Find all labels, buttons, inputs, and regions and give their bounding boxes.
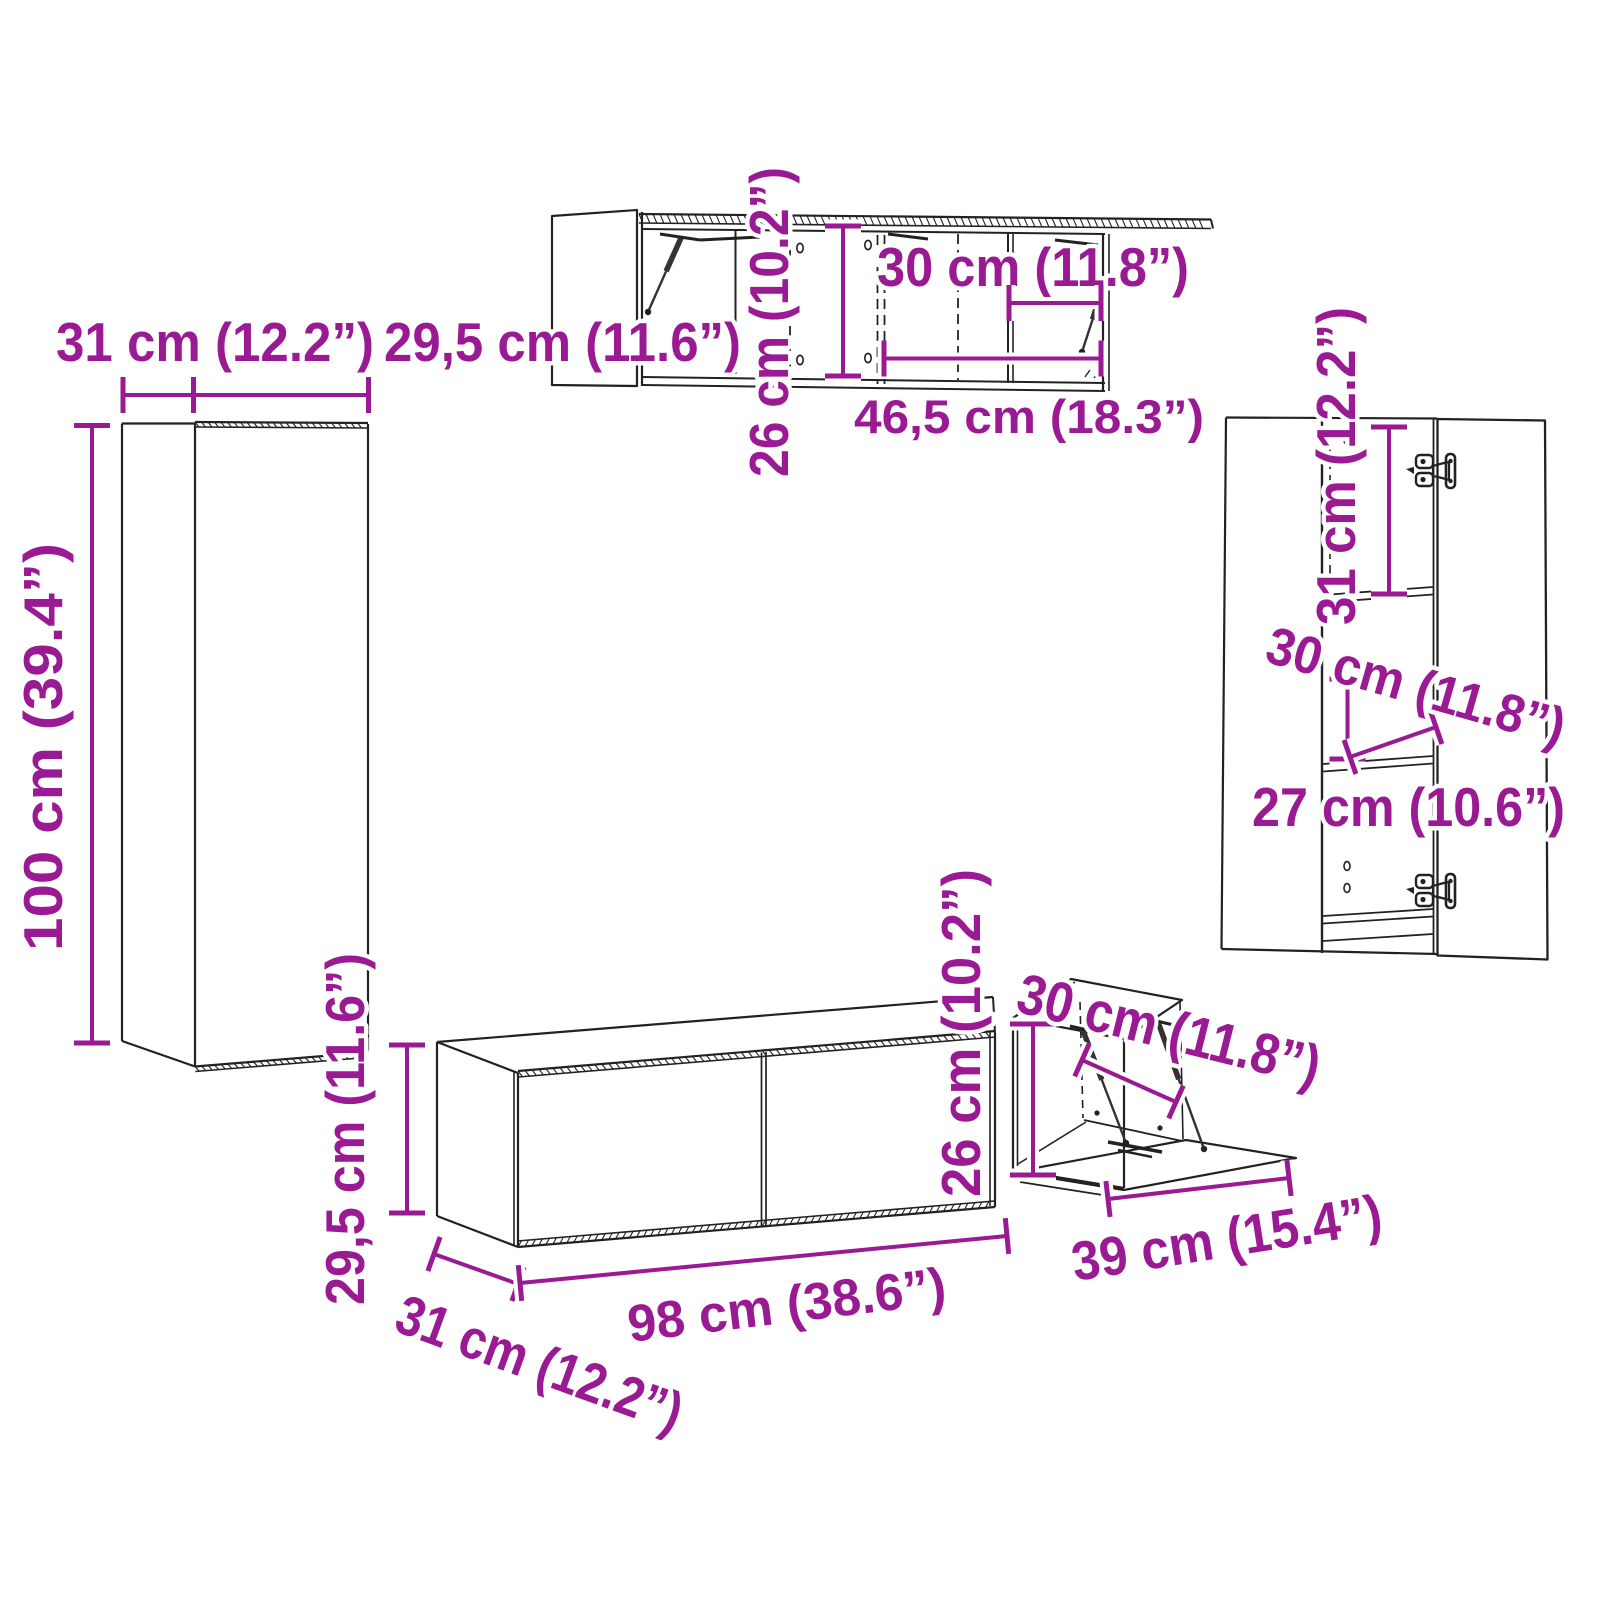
svg-text:26 cm (10.2”): 26 cm (10.2”) bbox=[930, 869, 992, 1197]
svg-text:31 cm (12.2”): 31 cm (12.2”) bbox=[1305, 307, 1367, 625]
svg-text:100 cm (39.4”): 100 cm (39.4”) bbox=[12, 543, 74, 951]
svg-text:29,5 cm (11.6”): 29,5 cm (11.6”) bbox=[384, 311, 741, 373]
svg-text:30 cm (11.8”): 30 cm (11.8”) bbox=[877, 236, 1189, 298]
svg-text:29,5 cm (11.6”): 29,5 cm (11.6”) bbox=[314, 953, 376, 1305]
svg-text:31 cm (12.2”): 31 cm (12.2”) bbox=[56, 311, 374, 373]
svg-text:26 cm (10.2”): 26 cm (10.2”) bbox=[738, 167, 800, 477]
svg-text:27 cm (10.6”): 27 cm (10.6”) bbox=[1252, 776, 1565, 838]
svg-text:46,5 cm (18.3”): 46,5 cm (18.3”) bbox=[854, 390, 1204, 443]
